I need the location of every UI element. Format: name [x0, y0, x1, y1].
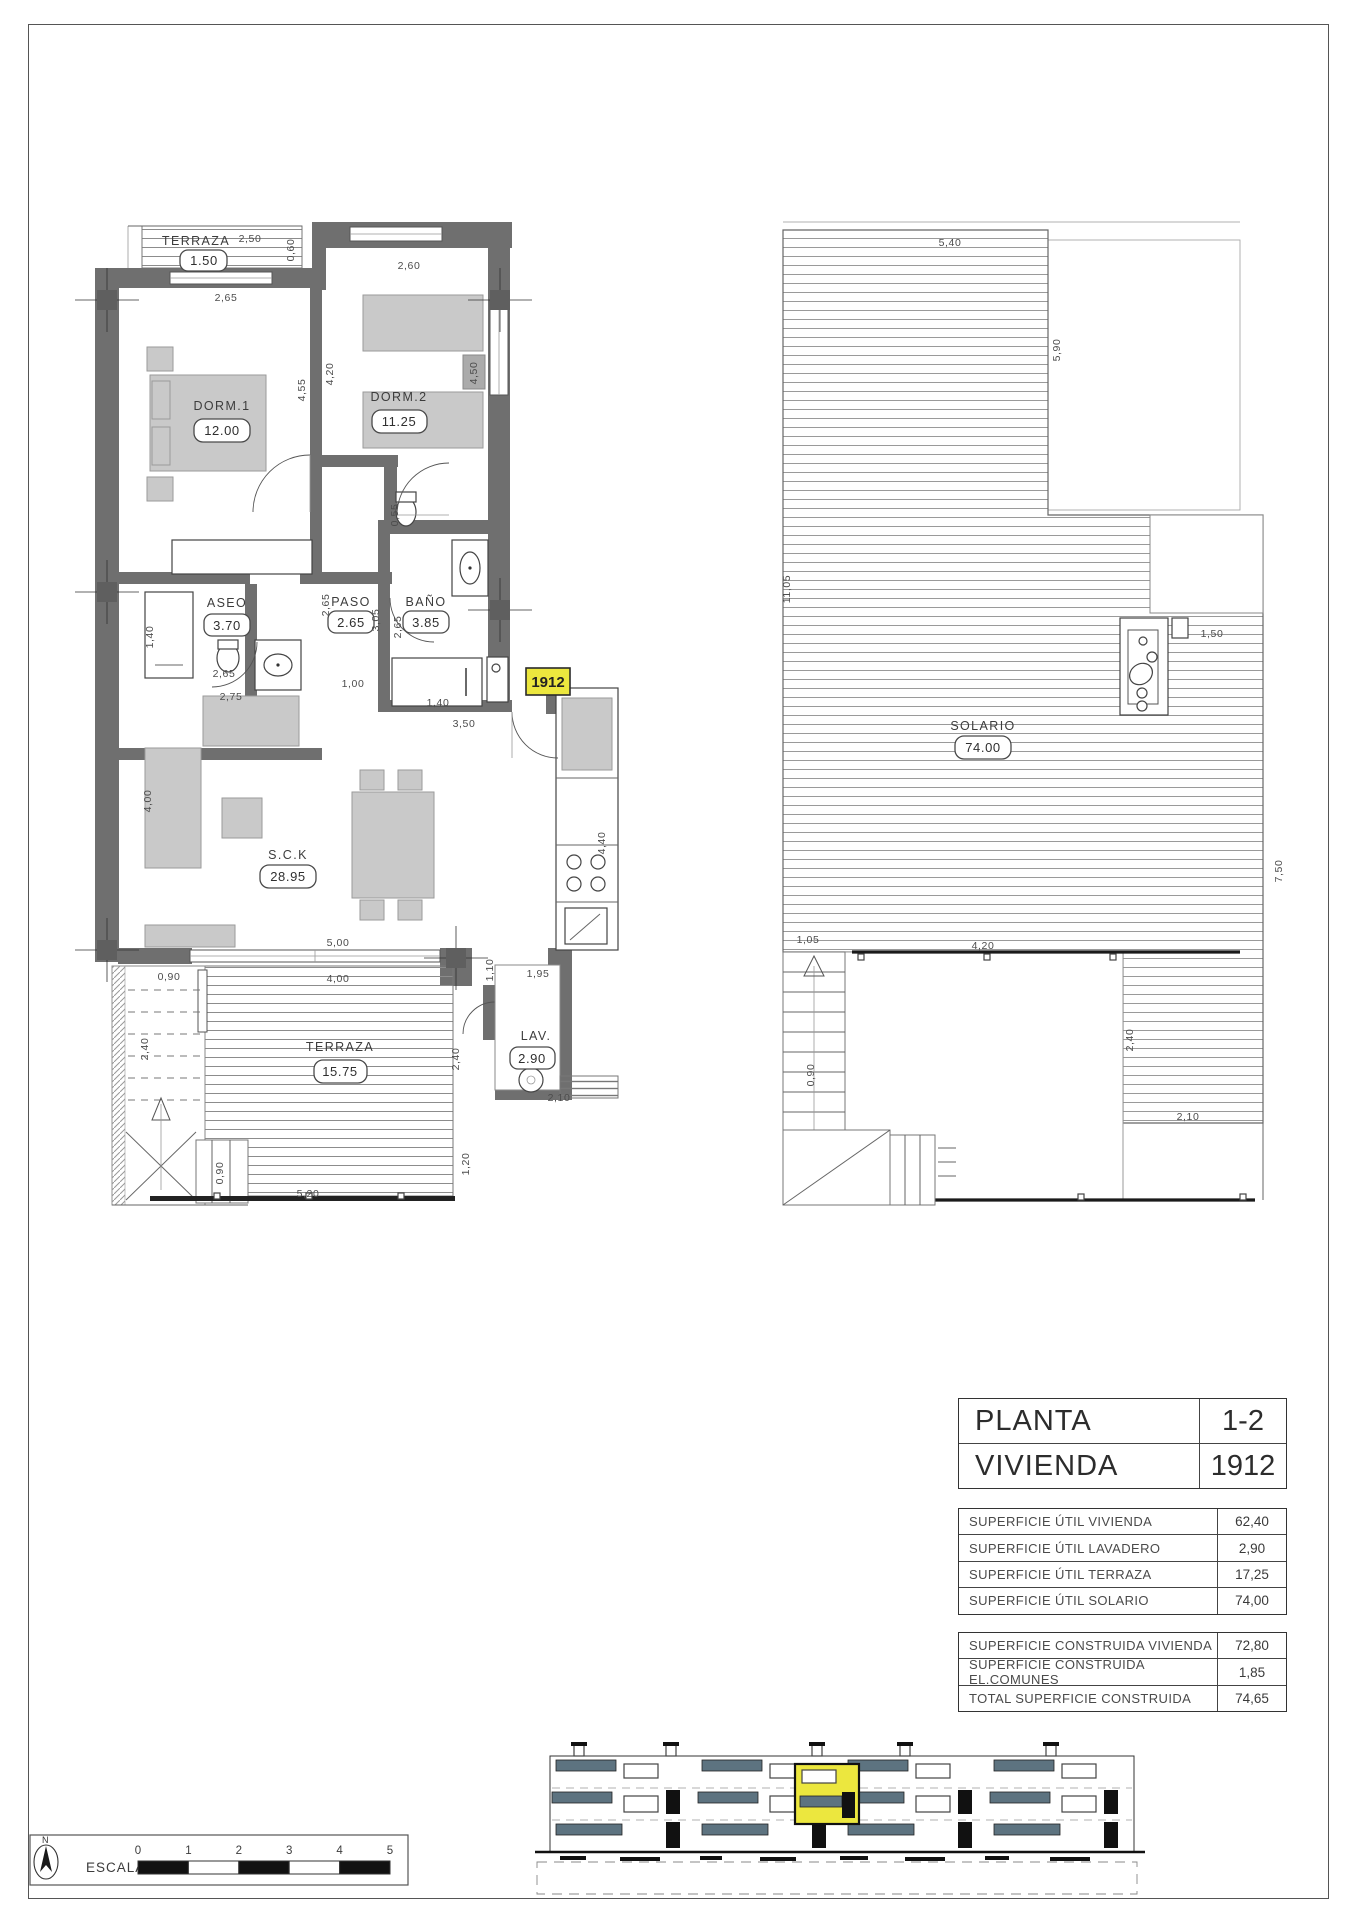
built-areas-table: SUPERFICIE CONSTRUIDA VIVIENDA 72,80 SUP…: [958, 1632, 1287, 1712]
plot-outline: [537, 1862, 1137, 1894]
room-label-dorm1: DORM.1 12.00: [193, 399, 250, 442]
water-heater-icon: [519, 1068, 543, 1092]
svg-text:5,00: 5,00: [327, 937, 350, 949]
svg-text:1,95: 1,95: [527, 968, 550, 980]
svg-text:4,40: 4,40: [596, 832, 608, 855]
svg-text:2,50: 2,50: [239, 233, 262, 245]
table-row: PLANTA 1-2: [959, 1399, 1286, 1444]
table-row: SUPERFICIE CONSTRUIDA VIVIENDA 72,80: [959, 1633, 1286, 1659]
terrace-lower: [112, 966, 455, 1205]
svg-text:1,40: 1,40: [144, 626, 156, 649]
adjacent-unit-outline: [1048, 240, 1240, 510]
table-row: SUPERFICIE CONSTRUIDA EL.COMUNES 1,85: [959, 1659, 1286, 1685]
unit-tag: 1912: [526, 668, 570, 695]
svg-text:1,50: 1,50: [1201, 628, 1224, 640]
highlighted-unit: [795, 1764, 859, 1824]
svg-text:4,20: 4,20: [324, 363, 336, 386]
area-label: SUPERFICIE ÚTIL VIVIENDA: [959, 1509, 1217, 1534]
svg-text:0,90: 0,90: [805, 1064, 817, 1087]
plan-unit-table: PLANTA 1-2 VIVIENDA 1912: [958, 1398, 1287, 1489]
svg-text:ASEO: ASEO: [207, 596, 247, 610]
table-row: SUPERFICIE ÚTIL LAVADERO 2,90: [959, 1535, 1286, 1561]
svg-text:3,50: 3,50: [453, 718, 476, 730]
table-row: VIVIENDA 1912: [959, 1444, 1286, 1488]
svg-text:0,90: 0,90: [158, 971, 181, 983]
area-label: SUPERFICIE ÚTIL TERRAZA: [959, 1562, 1217, 1587]
svg-text:2,40: 2,40: [450, 1048, 462, 1071]
scale-box: N ESCALA : 0 1 2 3 4 5: [30, 1835, 408, 1885]
room-label-dorm2: DORM.2 11.25: [370, 390, 427, 433]
svg-text:SOLARIO: SOLARIO: [950, 719, 1015, 733]
svg-text:BAÑO: BAÑO: [405, 595, 446, 609]
unit-tag-number: 1912: [531, 674, 564, 691]
svg-text:4,50: 4,50: [468, 362, 480, 385]
svg-text:0: 0: [135, 1845, 141, 1857]
svg-text:1,00: 1,00: [342, 678, 365, 690]
svg-text:3.70: 3.70: [213, 618, 241, 633]
svg-text:7,50: 7,50: [1273, 860, 1285, 883]
chimneys: [571, 1742, 1059, 1756]
kitchen-counter: [556, 688, 618, 950]
svg-text:2,65: 2,65: [320, 594, 332, 617]
vivienda-label: VIVIENDA: [959, 1444, 1199, 1488]
svg-text:2.90: 2.90: [518, 1051, 546, 1066]
planta-value: 1-2: [1199, 1399, 1286, 1443]
floor-plan-solarium: SOLARIO 74.00 5,40 11,05 5,90 1,50 7,50 …: [781, 222, 1285, 1205]
area-value: 74,65: [1217, 1686, 1286, 1711]
svg-text:2: 2: [236, 1845, 242, 1857]
svg-text:2,10: 2,10: [548, 1092, 571, 1104]
area-value: 2,90: [1217, 1535, 1286, 1560]
svg-text:1.50: 1.50: [190, 253, 218, 268]
area-label: TOTAL SUPERFICIE CONSTRUIDA: [959, 1686, 1217, 1711]
svg-text:PASO: PASO: [331, 595, 370, 609]
svg-text:0,55: 0,55: [389, 504, 401, 527]
svg-text:5: 5: [387, 1845, 393, 1857]
room-label-aseo: ASEO 3.70: [204, 596, 250, 636]
svg-text:5,90: 5,90: [1051, 339, 1063, 362]
svg-text:4,55: 4,55: [296, 379, 308, 402]
svg-text:LAV.: LAV.: [521, 1029, 552, 1043]
svg-text:DORM.2: DORM.2: [370, 390, 427, 404]
svg-text:2,40: 2,40: [139, 1038, 151, 1061]
area-value: 62,40: [1217, 1509, 1286, 1534]
svg-text:1: 1: [185, 1845, 191, 1857]
svg-text:12.00: 12.00: [204, 423, 240, 438]
svg-text:S.C.K: S.C.K: [268, 848, 308, 862]
area-label: SUPERFICIE CONSTRUIDA VIVIENDA: [959, 1633, 1217, 1658]
scale-bar: [138, 1861, 390, 1874]
svg-text:2,65: 2,65: [215, 292, 238, 304]
svg-text:2,40: 2,40: [1124, 1029, 1136, 1052]
area-label: SUPERFICIE ÚTIL LAVADERO: [959, 1535, 1217, 1560]
svg-text:4: 4: [336, 1845, 343, 1857]
svg-text:74.00: 74.00: [965, 740, 1001, 755]
svg-text:11,05: 11,05: [781, 575, 793, 604]
area-value: 74,00: [1217, 1588, 1286, 1613]
table-row: SUPERFICIE ÚTIL SOLARIO 74,00: [959, 1588, 1286, 1613]
svg-text:4,00: 4,00: [142, 790, 154, 813]
planta-label: PLANTA: [959, 1399, 1199, 1443]
svg-text:11.25: 11.25: [382, 414, 417, 429]
ground-hatch: [560, 1856, 1090, 1861]
svg-text:1,10: 1,10: [484, 959, 496, 982]
svg-text:15.75: 15.75: [322, 1064, 358, 1079]
svg-text:TERRAZA: TERRAZA: [162, 234, 230, 248]
svg-text:TERRAZA: TERRAZA: [306, 1040, 374, 1054]
laundry-room: [495, 965, 618, 1098]
svg-text:2,65: 2,65: [392, 616, 404, 639]
plan-sheet: 1912 TERRAZA 1.50 DORM.1 12.00 DORM.2 11: [0, 0, 1356, 1920]
room-label-paso: PASO 2.65: [328, 595, 374, 633]
svg-text:1,05: 1,05: [797, 934, 820, 946]
svg-text:2,10: 2,10: [1177, 1111, 1200, 1123]
table-row: SUPERFICIE ÚTIL TERRAZA 17,25: [959, 1562, 1286, 1588]
room-label-bano: BAÑO 3.85: [403, 595, 449, 633]
solarium-cutout: [1150, 515, 1263, 613]
area-value: 17,25: [1217, 1562, 1286, 1587]
room-label-solario: SOLARIO 74.00: [950, 719, 1015, 759]
area-value: 1,85: [1217, 1659, 1286, 1684]
svg-text:1,20: 1,20: [460, 1153, 472, 1176]
area-value: 72,80: [1217, 1633, 1286, 1658]
svg-text:2.65: 2.65: [337, 615, 365, 630]
area-label: SUPERFICIE CONSTRUIDA EL.COMUNES: [959, 1659, 1217, 1684]
table-row: SUPERFICIE ÚTIL VIVIENDA 62,40: [959, 1509, 1286, 1535]
svg-text:5,20: 5,20: [297, 1188, 320, 1200]
vivienda-value: 1912: [1199, 1444, 1286, 1488]
svg-text:5,40: 5,40: [939, 237, 962, 249]
svg-text:1,40: 1,40: [427, 697, 450, 709]
svg-text:0,90: 0,90: [214, 1162, 226, 1185]
svg-text:3: 3: [286, 1845, 292, 1857]
svg-text:DORM.1: DORM.1: [193, 399, 250, 413]
building-elevation: [535, 1742, 1145, 1894]
svg-text:4,20: 4,20: [972, 940, 995, 952]
svg-text:3.85: 3.85: [412, 615, 440, 630]
svg-text:4,00: 4,00: [327, 973, 350, 985]
area-label: SUPERFICIE ÚTIL SOLARIO: [959, 1588, 1217, 1613]
room-label-sck: S.C.K 28.95: [260, 848, 316, 888]
svg-text:3,05: 3,05: [370, 609, 382, 632]
useful-areas-table: SUPERFICIE ÚTIL VIVIENDA 62,40 SUPERFICI…: [958, 1508, 1287, 1615]
svg-text:2,65: 2,65: [213, 668, 236, 680]
svg-text:2,60: 2,60: [398, 260, 421, 272]
svg-text:28.95: 28.95: [270, 869, 306, 884]
table-row: TOTAL SUPERFICIE CONSTRUIDA 74,65: [959, 1686, 1286, 1711]
svg-text:0,60: 0,60: [285, 239, 297, 262]
floor-plan-dwelling: 1912 TERRAZA 1.50 DORM.1 12.00 DORM.2 11: [75, 222, 618, 1205]
svg-text:2,75: 2,75: [220, 691, 243, 703]
compass-north-label: N: [42, 1835, 49, 1845]
